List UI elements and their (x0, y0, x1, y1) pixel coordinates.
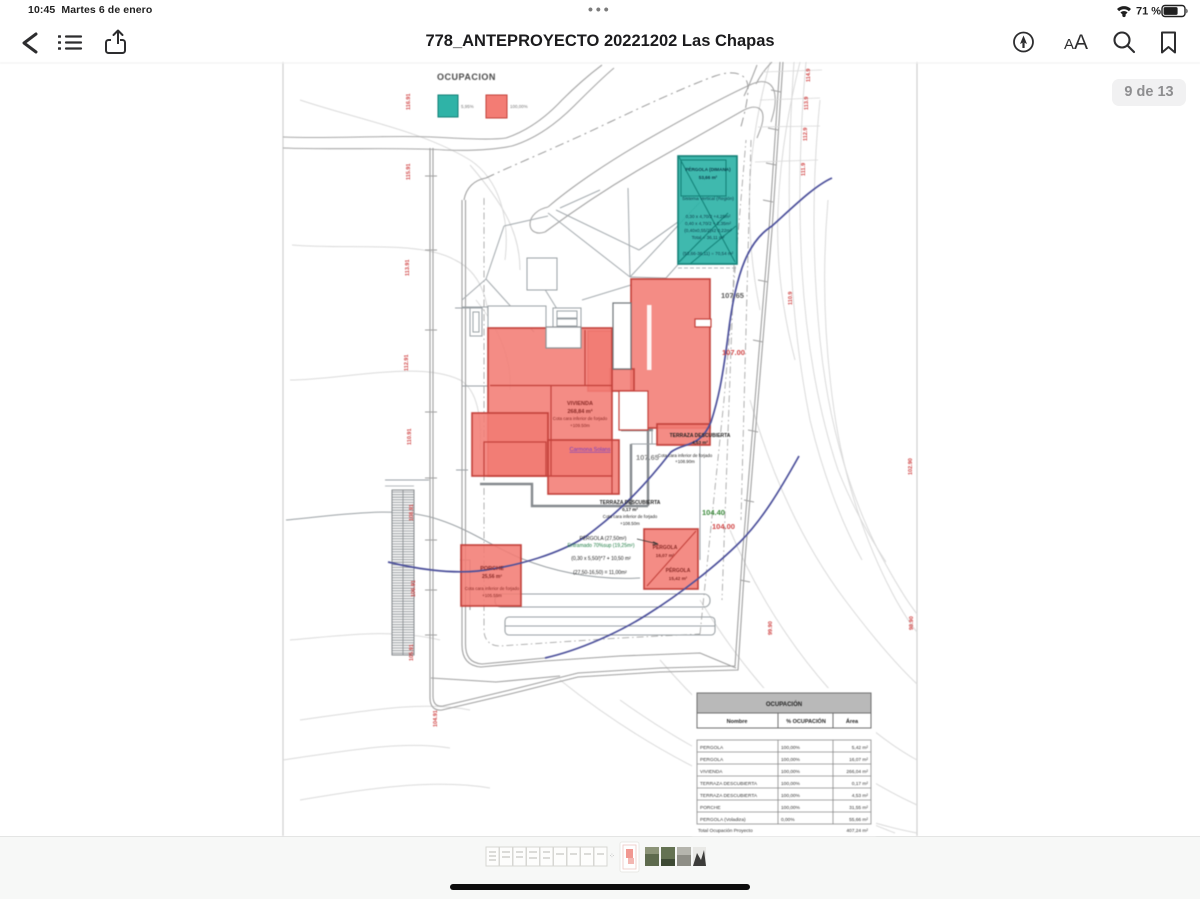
svg-text:TERRAZA DESCUBIERTA: TERRAZA DESCUBIERTA (670, 433, 731, 439)
svg-text:A: A (1064, 36, 1074, 53)
svg-text:104.00: 104.00 (712, 522, 735, 531)
svg-text:107.65: 107.65 (721, 291, 744, 300)
svg-text:104.40: 104.40 (702, 508, 725, 517)
svg-text:OCUPACIÓN: OCUPACIÓN (766, 700, 802, 708)
svg-text:100,00%: 100,00% (781, 757, 801, 763)
svg-text:53,66 m²: 53,66 m² (699, 175, 718, 180)
svg-text:102.90: 102.90 (908, 458, 914, 475)
svg-text:4,53 m²: 4,53 m² (692, 440, 708, 445)
svg-text:100,00%: 100,00% (781, 769, 801, 775)
svg-text:115.91: 115.91 (406, 163, 412, 180)
svg-text:16,07 m²: 16,07 m² (656, 553, 675, 558)
svg-text:110.9: 110.9 (788, 292, 794, 305)
svg-text:PERGOLA: PERGOLA (700, 745, 724, 751)
svg-text:⁘: ⁘ (609, 853, 615, 860)
svg-text:114.9: 114.9 (806, 69, 812, 82)
svg-text:Sistema Vertical (Región): Sistema Vertical (Región) (682, 196, 734, 201)
svg-text:111.9: 111.9 (801, 163, 807, 176)
svg-text:113.9: 113.9 (804, 97, 810, 110)
svg-text:PÉRGOLA (27,50m²): PÉRGOLA (27,50m²) (580, 535, 627, 542)
svg-text:25,56 m²: 25,56 m² (482, 574, 502, 580)
svg-text:+109.50m: +109.50m (570, 423, 590, 428)
svg-text:Carmona Solans: Carmona Solans (570, 447, 611, 453)
svg-text:0,40 x 4,70/2 + 2,35m²: 0,40 x 4,70/2 + 2,35m² (685, 221, 732, 226)
svg-text:+108.50m: +108.50m (620, 521, 640, 526)
svg-text:PORCHE: PORCHE (700, 805, 721, 811)
svg-text:(0,30 x 5,50/)*7 + 10,50 m²: (0,30 x 5,50/)*7 + 10,50 m² (571, 556, 631, 562)
svg-text:107.00: 107.00 (722, 348, 745, 357)
svg-text:113.91: 113.91 (405, 259, 411, 276)
svg-text:268,84 m²: 268,84 m² (567, 408, 592, 415)
svg-text:Área: Área (846, 718, 859, 725)
svg-text:108.91: 108.91 (409, 504, 415, 521)
svg-text:VIVIENDA: VIVIENDA (567, 401, 593, 407)
svg-text:55,66 m²: 55,66 m² (849, 817, 868, 823)
svg-text:100,00%: 100,00% (781, 805, 801, 811)
svg-text:PÉRGOLA: PÉRGOLA (653, 543, 678, 551)
svg-text:TERRAZA DESCUBIERTA: TERRAZA DESCUBIERTA (600, 500, 661, 506)
svg-text:100,00%: 100,00% (781, 793, 801, 799)
svg-text:TERRAZA DESCUBIERTA: TERRAZA DESCUBIERTA (700, 793, 758, 799)
svg-text:5,95%: 5,95% (461, 104, 474, 109)
svg-text:+105.55m: +105.55m (482, 593, 502, 598)
svg-text:Nombre: Nombre (727, 719, 748, 725)
svg-text:107.65: 107.65 (636, 453, 659, 462)
svg-text:Total Ocupación Proyecto: Total Ocupación Proyecto (698, 828, 753, 834)
svg-text:A: A (1074, 31, 1088, 54)
svg-text:0,17 m²: 0,17 m² (622, 507, 638, 512)
svg-text:407,24 m²: 407,24 m² (846, 828, 868, 834)
svg-text:(0,40x0,55/2)x2 0,22m²: (0,40x0,55/2)x2 0,22m² (684, 228, 732, 233)
svg-text:4,53 m²: 4,53 m² (852, 793, 869, 799)
svg-text:100,00%: 100,00% (781, 781, 801, 787)
svg-text:TERRAZA DESCUBIERTA: TERRAZA DESCUBIERTA (700, 781, 758, 787)
svg-text:0,30 x 4,70/2 +4,25m²: 0,30 x 4,70/2 +4,25m² (686, 214, 731, 219)
svg-text:106.91: 106.91 (411, 580, 417, 597)
svg-text:+108.90m: +108.90m (675, 459, 695, 464)
svg-text:(53,66-36,11) = 70,54 m²: (53,66-36,11) = 70,54 m² (683, 251, 734, 256)
svg-text:PERGOLA (Voladiza): PERGOLA (Voladiza) (700, 817, 746, 823)
svg-text:0,00%: 0,00% (781, 817, 795, 823)
svg-text:PÉRGOLA (DIMANA): PÉRGOLA (DIMANA) (685, 165, 731, 172)
svg-text:112.91: 112.91 (404, 354, 410, 371)
svg-text:PÉRGOLA: PÉRGOLA (666, 566, 691, 574)
svg-text:(27,50-16,50) = 11,00m²: (27,50-16,50) = 11,00m² (573, 570, 627, 576)
svg-text:5,42 m²: 5,42 m² (852, 745, 869, 751)
svg-text:100,00%: 100,00% (510, 104, 528, 109)
svg-text:266,04 m²: 266,04 m² (846, 769, 868, 775)
svg-text:116.91: 116.91 (406, 93, 412, 110)
svg-text:VIVIENDA: VIVIENDA (700, 769, 723, 775)
svg-text:104.91: 104.91 (433, 710, 439, 727)
svg-text:PORCHE: PORCHE (480, 566, 504, 572)
svg-text:15,42 m²: 15,42 m² (669, 576, 688, 581)
svg-text:Cota cara inferior de forjado: Cota cara inferior de forjado (465, 586, 520, 591)
svg-text:98.90: 98.90 (909, 616, 915, 630)
svg-text:Cota cara inferior de forjado: Cota cara inferior de forjado (553, 416, 608, 421)
svg-text:100,00%: 100,00% (781, 745, 801, 751)
svg-text:Cota cara inferior de forjado: Cota cara inferior de forjado (658, 453, 713, 458)
svg-text:0,17 m²: 0,17 m² (852, 781, 869, 787)
svg-text:31,55 m²: 31,55 m² (849, 805, 868, 811)
svg-text:105.91: 105.91 (409, 644, 415, 661)
svg-text:Entramado 70%sup (19,25m²): Entramado 70%sup (19,25m²) (568, 543, 635, 549)
svg-text:PERGOLA: PERGOLA (700, 757, 724, 763)
svg-text:16,07 m²: 16,07 m² (849, 757, 868, 763)
svg-text:110.91: 110.91 (407, 428, 413, 445)
svg-text:Total = 36,11 m²: Total = 36,11 m² (692, 235, 725, 240)
svg-text:% OCUPACIÓN: % OCUPACIÓN (786, 717, 826, 725)
svg-text:Cota cara inferior de forjado: Cota cara inferior de forjado (603, 514, 658, 519)
svg-text:99.90: 99.90 (768, 621, 774, 635)
svg-text:112.9: 112.9 (803, 128, 809, 141)
svg-text:OCUPACION: OCUPACION (437, 72, 496, 82)
